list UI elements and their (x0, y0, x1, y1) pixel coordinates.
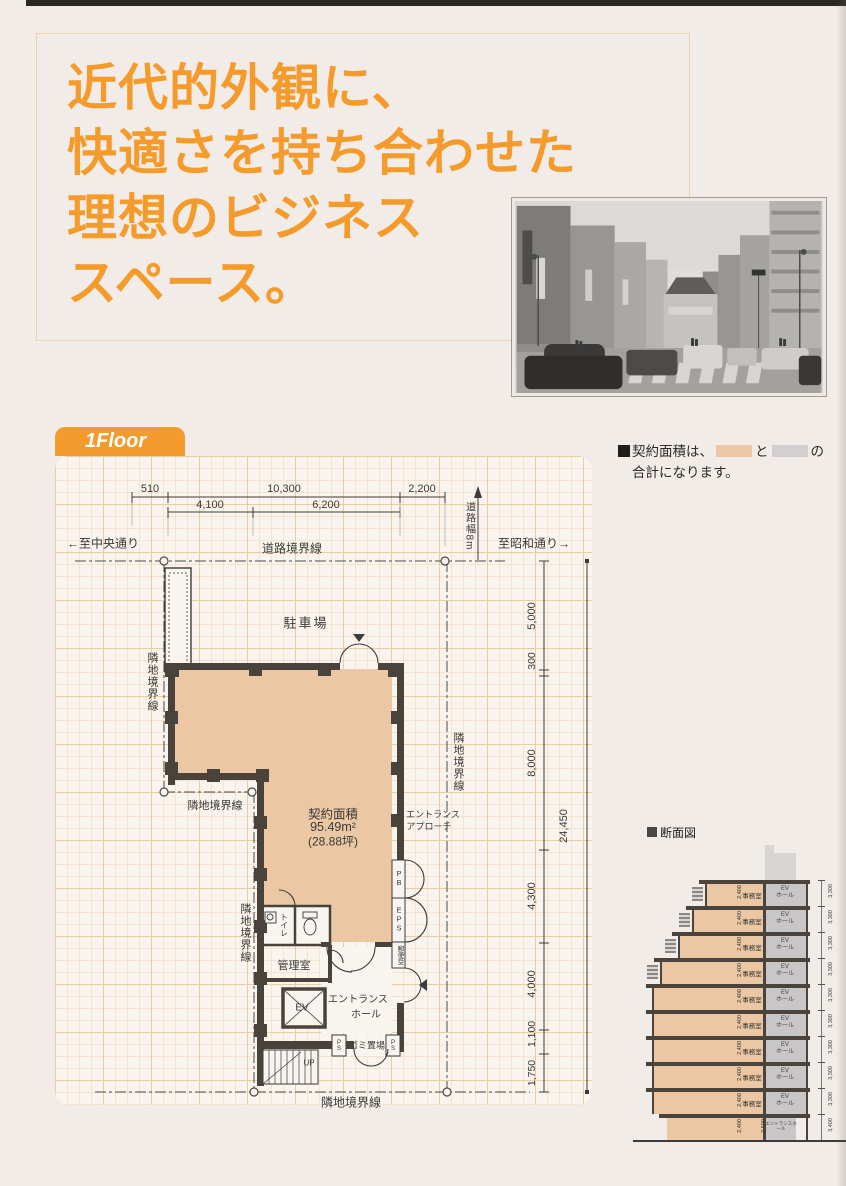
ev-hall-label: EVホール (766, 912, 804, 926)
dim-end-marker (585, 1090, 589, 1094)
section-floor: 2,400事務室EVホール (652, 1036, 808, 1062)
office-label: 事務室 (736, 916, 768, 926)
area-note-text: の (811, 444, 825, 459)
setback-louver (647, 965, 658, 979)
floor-pitch-label: 3,300 (828, 910, 834, 924)
pb-shaft-label: PB (395, 869, 404, 887)
dim-tick (818, 906, 825, 907)
eps-shaft-label: EPS (395, 906, 404, 933)
entrance-hall-label-1: エントランス (328, 991, 388, 1006)
section-floor: 2,400事務室EVホール (652, 1010, 808, 1036)
ev-hall-label: EVホール (766, 964, 804, 978)
square-bullet-icon (618, 445, 630, 457)
floor-plan-drawing (55, 456, 592, 1105)
office-label: 事務室 (736, 1098, 768, 1108)
office-label: 事務室 (736, 968, 768, 978)
floor-pitch-label: 3,300 (828, 962, 834, 976)
toilet-label: トイレ (279, 913, 290, 937)
adjacent-boundary-label: 隣地境界線 (188, 797, 243, 813)
headline-line: 快適さを持ち合わせた (67, 121, 577, 186)
office-label: 事務室 (736, 1072, 768, 1082)
scan-edge-strip (26, 0, 846, 6)
wall (806, 988, 808, 1010)
ev-hall-label: EVホール (766, 990, 804, 1004)
dim-1750: 1,750 (526, 1060, 538, 1086)
section-ground-floor: 2,4002,500エントランスホール (665, 1114, 808, 1140)
dim-1100: 1,100 (526, 1021, 538, 1047)
signboard (165, 568, 191, 672)
ground-line (633, 1140, 846, 1142)
ev-hall-label: EVホール (766, 1016, 804, 1030)
floor-pitch-label: 3,300 (828, 1066, 834, 1080)
street-photo-graphic (515, 201, 823, 393)
section-floor: 2,400事務室EVホール (692, 906, 808, 932)
setback-louver (665, 939, 676, 953)
section-diagram: 断面図 2,400事務室EVホール2,400事務室EVホール2,400事務室EV… (625, 820, 846, 1170)
office-label: 事務室 (736, 1020, 768, 1030)
dim-end-marker (585, 559, 589, 563)
street-to-showa: 至昭和通り→ (498, 535, 570, 552)
gf-pitch-label: 3,400 (828, 1118, 834, 1132)
floor-tab: 1Floor (55, 427, 185, 456)
setback-louver (679, 913, 690, 927)
ev-hall-label: EVホール (766, 1042, 804, 1056)
floor-pitch-label: 3,300 (828, 936, 834, 950)
dim-tick (818, 958, 825, 959)
wall (806, 962, 808, 984)
street-photo (512, 198, 826, 396)
dim-4000: 4,000 (526, 970, 538, 998)
floor-pitch-label: 3,300 (828, 988, 834, 1002)
dim-tick (818, 984, 825, 985)
dim-tick (818, 932, 825, 933)
dim-tick (818, 1114, 825, 1115)
scan-edge-shadow (836, 0, 846, 1186)
up-arrow-icon (474, 486, 482, 498)
office-label: 事務室 (736, 1046, 768, 1056)
dim-510: 510 (141, 483, 159, 495)
brochure-page: 近代的外観に、 快適さを持ち合わせた 理想のビジネス スペース。 (0, 0, 846, 1186)
floor-plan-panel: 510 10,300 2,200 4,100 6,200 道路幅8m ←至中央通… (55, 456, 592, 1105)
ps-label: PS (390, 1040, 396, 1052)
area-note-line2: 合計になります。 (618, 462, 838, 483)
wall (806, 936, 808, 958)
adjacent-boundary-label: 隣地境界線 (144, 652, 160, 712)
area-note-line1: 契約面積は、との (618, 441, 838, 462)
adjacent-boundary-label: 隣地境界線 (321, 1094, 381, 1111)
ev-hall-label: EVホール (766, 1094, 804, 1108)
dim-tick (818, 1036, 825, 1037)
approach-label-2: アプローチ (406, 820, 451, 833)
ceiling-height-label: 2,400 (737, 1119, 743, 1133)
headline-line: 近代的外観に、 (67, 56, 577, 121)
wall (806, 1014, 808, 1036)
wall (806, 1092, 808, 1114)
ps-label: PS (336, 1040, 342, 1052)
floor-pitch-label: 3,300 (828, 884, 834, 898)
road-width-label: 道路幅8m (462, 502, 477, 551)
floor-pitch-label: 3,300 (828, 1014, 834, 1028)
contract-area-tsubo: (28.88坪) (308, 833, 358, 850)
ev-hall-label: EVホール (766, 1068, 804, 1082)
ev-hall-label: EVホール (766, 886, 804, 900)
area-note-text: と (755, 444, 769, 459)
area-note-text: 契約面積は、 (632, 444, 713, 459)
parking-label: 駐車場 (283, 613, 328, 632)
elevator-label: EV (295, 1003, 308, 1014)
dim-tick (818, 1010, 825, 1011)
floor-tab-label: 1Floor (55, 427, 185, 453)
gf-hall-label: エントランスホール (765, 1121, 797, 1131)
entrance-floor (667, 1118, 763, 1140)
road-boundary-label: 道路境界線 (262, 540, 322, 557)
dim-4100: 4,100 (196, 499, 224, 511)
adjacent-boundary-label: 隣地境界線 (450, 732, 466, 792)
headline: 近代的外観に、 快適さを持ち合わせた 理想のビジネス スペース。 (67, 56, 577, 316)
wall (806, 1066, 808, 1088)
entry-arrow-icon (353, 634, 365, 642)
section-floor: 2,400事務室EVホール (660, 958, 808, 984)
wall (806, 884, 808, 906)
section-floors: 2,400事務室EVホール2,400事務室EVホール2,400事務室EVホール2… (625, 820, 846, 1170)
dim-300: 300 (526, 652, 538, 670)
manager-room-label: 管理室 (278, 957, 311, 973)
dim-8000: 8,000 (526, 749, 538, 777)
office-label: 事務室 (736, 942, 768, 952)
dim-tick (818, 1088, 825, 1089)
setback-louver (692, 887, 703, 901)
gray-swatch (772, 445, 808, 457)
dim-tick (818, 880, 825, 881)
ev-hall-label: EVホール (766, 938, 804, 952)
stairs-up-label: UP (303, 1059, 314, 1068)
dim-6200: 6,200 (312, 499, 340, 511)
section-floor: 2,400事務室EVホール (705, 880, 808, 906)
floor-pitch-label: 3,300 (828, 1092, 834, 1106)
section-floor: 2,400事務室EVホール (652, 1062, 808, 1088)
wall (806, 910, 808, 932)
tan-swatch (716, 445, 752, 457)
adjacent-boundary-label: 隣地境界線 (237, 903, 253, 963)
mailbox-label: 郵便受 (394, 945, 404, 965)
wall (806, 1118, 808, 1140)
garbage-label: ゴミ置場 (349, 1039, 385, 1052)
dim-2200: 2,200 (408, 483, 436, 495)
headline-line: 理想のビジネス (67, 186, 577, 251)
dim-10300: 10,300 (267, 483, 301, 495)
entrance-hall-label-2: ホール (351, 1006, 381, 1021)
section-floor: 2,400事務室EVホール (652, 984, 808, 1010)
wall (806, 1040, 808, 1062)
area-note: 契約面積は、との 合計になります。 (618, 441, 838, 483)
headline-line: スペース。 (67, 251, 577, 316)
floor-pitch-label: 3,300 (828, 1040, 834, 1054)
section-floor: 2,400事務室EVホール (652, 1088, 808, 1114)
dim-4300: 4,300 (526, 882, 538, 910)
office-label: 事務室 (736, 890, 768, 900)
office-label: 事務室 (736, 994, 768, 1004)
street-to-chuo: ←至中央通り (67, 535, 139, 552)
dim-5000: 5,000 (526, 602, 538, 630)
dim-total-24450: 24,450 (558, 809, 570, 843)
dim-tick (818, 1062, 825, 1063)
section-floor: 2,400事務室EVホール (678, 932, 808, 958)
